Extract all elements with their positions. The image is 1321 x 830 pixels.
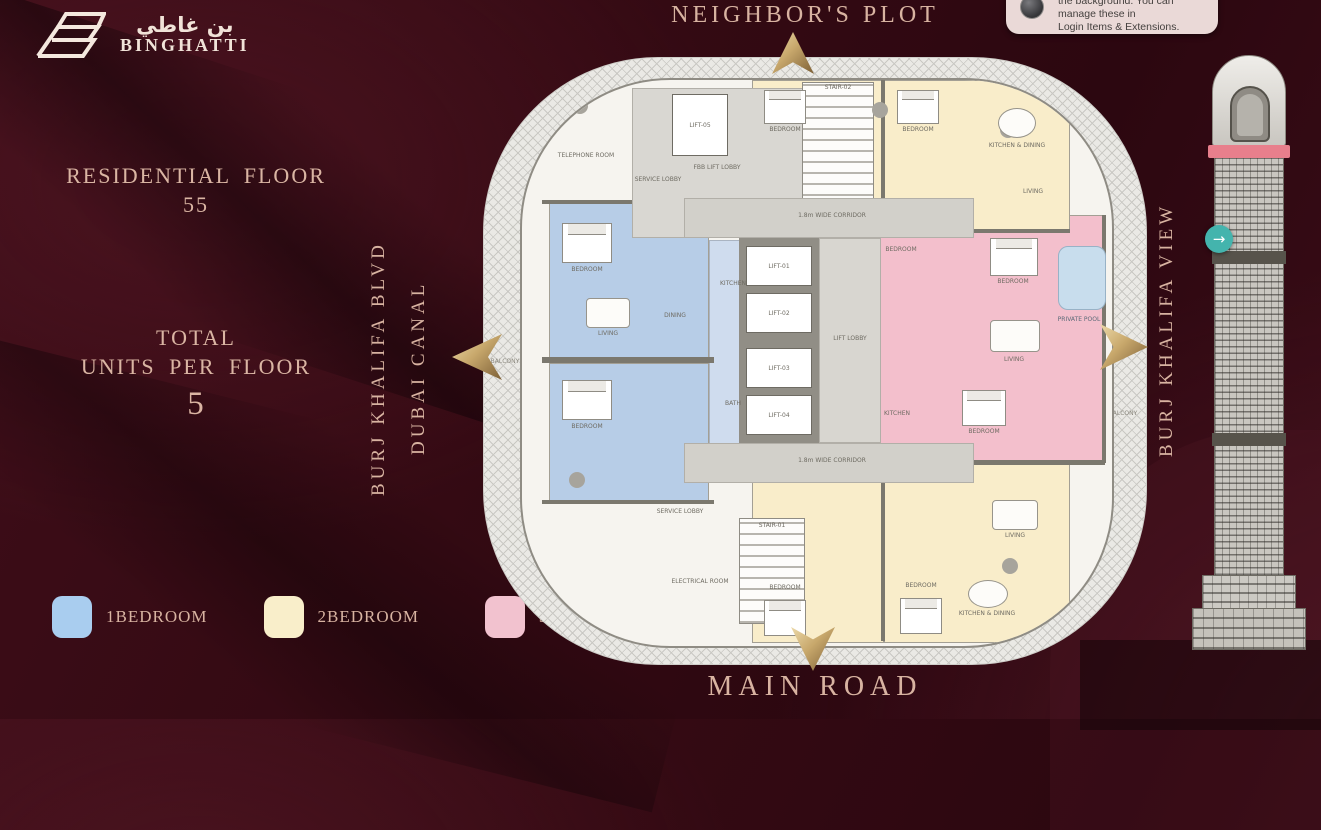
wall [542, 500, 714, 504]
bedroom-label: BEDROOM [984, 278, 1042, 285]
telephone-room-label: TELEPHONE ROOM [550, 152, 622, 159]
main-road-label: MAIN ROAD [700, 671, 930, 703]
lift-04-label: LIFT-04 [768, 412, 789, 419]
tower-crown [1212, 55, 1286, 147]
bed [897, 90, 939, 124]
bedroom-label: BEDROOM [558, 423, 616, 430]
burj-khalifa-view-label: BURJ KHALIFA VIEW [1156, 178, 1178, 482]
bed [562, 223, 612, 263]
burj-khalifa-blvd-label: BURJ KHALIFA BLVD [368, 218, 390, 520]
wall [881, 80, 885, 211]
legend-swatch-3bedroom [485, 596, 525, 638]
legend-label-1bedroom: 1BEDROOM [106, 607, 208, 627]
lift-03-label: LIFT-03 [768, 365, 789, 372]
tower-mechanical-floor [1212, 433, 1286, 446]
kitchen-dining-label: KITCHEN & DINING [974, 142, 1060, 149]
service-lobby-top-label: SERVICE LOBBY [618, 176, 698, 183]
tower-mechanical-floor [1212, 251, 1286, 264]
bed [562, 380, 612, 420]
column [572, 98, 588, 114]
living-label: LIVING [580, 330, 636, 337]
legend-item-1bedroom: 1BEDROOM [52, 596, 208, 638]
wall [542, 357, 714, 363]
units-per-floor-label: UNITS PER FLOOR [40, 354, 352, 380]
binghatti-logo-icon [32, 8, 106, 60]
right-arrow-icon: → [1213, 230, 1226, 248]
brand-name-latin: BINGHATTI [120, 36, 250, 55]
living-label: LIVING [1008, 188, 1058, 195]
private-pool-label: PRIVATE POOL [1034, 316, 1114, 323]
floor-plan-interior: LIFT-05 STAIR-02 1.8m WIDE CORRIDOR LIFT… [520, 78, 1114, 648]
column [569, 472, 585, 488]
notification-line2: Login Items & Extensions. [1058, 21, 1208, 34]
bedroom-label: BEDROOM [894, 582, 948, 589]
living-label: LIVING [986, 532, 1044, 539]
floor-plan: JACUZZI JACUZZI BALCONY BALCONY LIFT-05 … [483, 57, 1147, 665]
residential-floor-label: RESIDENTIAL FLOOR [40, 163, 352, 189]
lift-01-label: LIFT-01 [768, 263, 789, 270]
bedroom-label: BEDROOM [874, 246, 928, 253]
tower-elevation [1190, 55, 1308, 652]
column [872, 102, 888, 118]
units-per-floor-value: 5 [40, 386, 352, 423]
corridor-top-label: 1.8m WIDE CORRIDOR [752, 212, 912, 219]
legend-label-2bedroom: 2BEDROOM [318, 607, 420, 627]
stair-top-label: STAIR-02 [802, 84, 874, 91]
total-label: TOTAL [40, 325, 352, 351]
bed [900, 598, 942, 634]
dining-table [968, 580, 1008, 608]
fbb-lift-lobby-label: FBB LIFT LOBBY [672, 164, 762, 171]
stair-bottom-label: STAIR-01 [736, 522, 808, 529]
lift-05-label: LIFT-05 [689, 122, 710, 129]
lift-02-label: LIFT-02 [768, 310, 789, 317]
system-notification[interactable]: the background. You can manage these in … [1006, 0, 1218, 34]
dubai-canal-label: DUBAI CANAL [408, 252, 430, 484]
background-shadow-band [1080, 640, 1321, 730]
tower-highlight-band [1208, 145, 1290, 158]
tower-podium-lower [1192, 608, 1306, 650]
corridor-bottom-label: 1.8m WIDE CORRIDOR [752, 457, 912, 464]
lift-03: LIFT-03 [746, 348, 812, 388]
private-pool [1058, 246, 1106, 310]
bed [962, 390, 1006, 426]
dining-table [998, 108, 1036, 138]
stair-top [802, 82, 874, 208]
column [1002, 558, 1018, 574]
brand-logo: بن غاطي BINGHATTI [32, 8, 250, 60]
neighbors-plot-label: NEIGHBOR'S PLOT [655, 2, 955, 29]
living-table [586, 298, 630, 328]
bedroom-label: BEDROOM [558, 266, 616, 273]
stage: { "brand": { "arabic": "بن غاطي", "latin… [0, 0, 1321, 719]
legend-swatch-1bedroom [52, 596, 92, 638]
bedroom-label: BEDROOM [758, 584, 812, 591]
residential-floor-value: 55 [40, 192, 352, 218]
lift-02: LIFT-02 [746, 293, 812, 333]
brand-name-arabic: بن غاطي [136, 14, 233, 36]
dining-label: DINING [650, 312, 700, 319]
lift-05: LIFT-05 [672, 94, 728, 156]
bedroom-label: BEDROOM [956, 428, 1012, 435]
legend-swatch-2bedroom [264, 596, 304, 638]
kitchen-label: KITCHEN [870, 410, 924, 417]
bedroom-label: BEDROOM [758, 126, 812, 133]
next-arrow-button[interactable]: → [1205, 225, 1233, 253]
bed [764, 90, 806, 124]
wall [881, 481, 885, 641]
electrical-room-label: ELECTRICAL ROOM [660, 578, 740, 585]
bath-label: BATH [708, 400, 758, 407]
bed [990, 238, 1038, 276]
notification-line1: the background. You can manage these in [1058, 0, 1208, 21]
notification-app-icon [1020, 0, 1044, 19]
living-table [990, 320, 1040, 352]
bedroom-label: BEDROOM [891, 126, 945, 133]
kitchen-label: KITCHEN [708, 280, 758, 287]
tower-shaft [1214, 158, 1284, 575]
kitchen-dining-label: KITCHEN & DINING [942, 610, 1032, 617]
legend-item-2bedroom: 2BEDROOM [264, 596, 420, 638]
service-lobby-bottom-label: SERVICE LOBBY [640, 508, 720, 515]
tower-crown-arch [1230, 86, 1270, 142]
bed [764, 600, 806, 636]
lift-lobby-label: LIFT LOBBY [819, 335, 881, 342]
living-table [992, 500, 1038, 530]
living-label: LIVING [984, 356, 1044, 363]
